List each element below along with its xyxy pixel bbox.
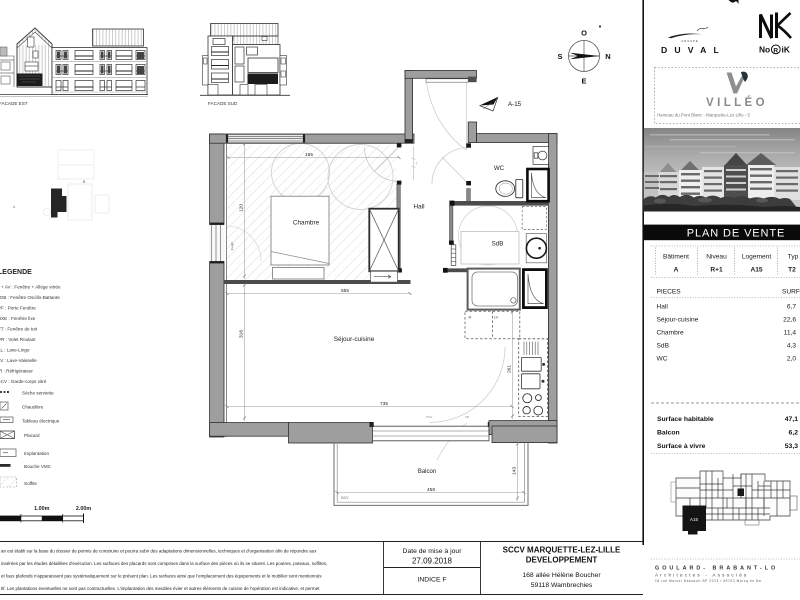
svg-text:T2: T2 bbox=[788, 267, 796, 274]
svg-text:Hall: Hall bbox=[413, 204, 424, 211]
svg-text:22,6: 22,6 bbox=[783, 317, 796, 324]
svg-text:A15: A15 bbox=[750, 267, 762, 274]
svg-text:SdB: SdB bbox=[657, 343, 670, 350]
svg-text:59118 Wambrechies: 59118 Wambrechies bbox=[531, 582, 593, 589]
svg-text:4,3: 4,3 bbox=[787, 343, 796, 350]
svg-text:insérées par les études détail: insérées par les études détaillées d'exé… bbox=[1, 561, 327, 566]
svg-text:VILLÉO: VILLÉO bbox=[706, 96, 768, 109]
svg-text:458: 458 bbox=[427, 487, 435, 493]
svg-text:No: No bbox=[759, 45, 770, 55]
svg-text:A15: A15 bbox=[690, 517, 699, 522]
svg-text:Hameau du Pont Blanc - Marquet: Hameau du Pont Blanc - Marquette-Lez-Lil… bbox=[657, 113, 751, 118]
svg-text:18 rue Marcel Dassault BP 20: 18 rue Marcel Dassault BP 2013 / 59703 M… bbox=[655, 579, 761, 583]
svg-text:GROUPE: GROUPE bbox=[681, 39, 698, 43]
svg-text:6,2: 6,2 bbox=[789, 430, 799, 437]
svg-text:Balcon: Balcon bbox=[418, 469, 436, 475]
svg-text:261: 261 bbox=[507, 365, 513, 373]
svg-text:168 allée Hélène Boucher: 168 allée Hélène Boucher bbox=[522, 572, 601, 579]
svg-text:WC: WC bbox=[494, 165, 505, 172]
svg-text:an est établi sur la base du d: an est établi sur la base du dossier de … bbox=[1, 549, 317, 554]
svg-text:143: 143 bbox=[512, 467, 518, 475]
svg-text:SURF.: SURF. bbox=[782, 289, 800, 296]
svg-text:Séjour-cuisine: Séjour-cuisine bbox=[334, 336, 375, 343]
svg-text:Hall: Hall bbox=[657, 304, 669, 311]
svg-text:Bouche VMC: Bouche VMC bbox=[24, 464, 52, 469]
svg-text:1.00m: 1.00m bbox=[34, 506, 49, 512]
svg-text:FIXE : Fenêtre fixe: FIXE : Fenêtre fixe bbox=[0, 316, 36, 321]
svg-text:O: O bbox=[581, 29, 587, 38]
svg-text:Chambre: Chambre bbox=[293, 220, 320, 227]
svg-text:316: 316 bbox=[239, 330, 245, 338]
svg-text:FACADE SUD: FACADE SUD bbox=[208, 101, 238, 106]
svg-text:A: A bbox=[13, 205, 16, 209]
svg-text:11,4: 11,4 bbox=[784, 330, 797, 337]
svg-text:F + AV : Fenêtre + Allège vitr: F + AV : Fenêtre + Allège vitrée bbox=[0, 285, 61, 290]
svg-text:et faux plafonds n'apparaissen: et faux plafonds n'apparaissent pas syst… bbox=[1, 574, 322, 579]
svg-text:7: 7 bbox=[416, 162, 418, 166]
svg-text:R: R bbox=[469, 316, 472, 320]
svg-text:555: 555 bbox=[341, 288, 349, 294]
svg-text:GCV: GCV bbox=[341, 496, 349, 500]
svg-text:165: 165 bbox=[305, 152, 313, 158]
svg-text:N: N bbox=[605, 52, 610, 61]
svg-text:FOB : Fenêtre Oscillo-Battante: FOB : Fenêtre Oscillo-Battante bbox=[0, 295, 60, 300]
svg-text:R: R bbox=[773, 47, 778, 54]
svg-text:Date de mise à jour: Date de mise à jour bbox=[403, 548, 463, 555]
svg-text:tif. Les plantations éventuell: tif. Les plantations éventuelles ne sont… bbox=[1, 586, 320, 591]
svg-text:2.00m: 2.00m bbox=[76, 506, 91, 512]
svg-text:2,0: 2,0 bbox=[787, 356, 796, 363]
svg-text:PF : Porte Fenêtre: PF : Porte Fenêtre bbox=[0, 306, 36, 311]
svg-text:INDICE F: INDICE F bbox=[417, 577, 446, 584]
svg-text:PVC: PVC bbox=[426, 415, 433, 419]
svg-text:47,1: 47,1 bbox=[785, 416, 798, 423]
svg-text:Bâtiment: Bâtiment bbox=[663, 254, 689, 261]
svg-text:PIECES: PIECES bbox=[657, 289, 682, 296]
svg-text:Sèche serviette: Sèche serviette bbox=[22, 391, 54, 396]
svg-text:FT : Fenêtre de toit: FT : Fenêtre de toit bbox=[0, 327, 38, 332]
svg-text:Chaudière: Chaudière bbox=[22, 405, 44, 410]
svg-text:PLAN DE VENTE: PLAN DE VENTE bbox=[687, 227, 786, 239]
svg-text:VR: VR bbox=[465, 415, 470, 419]
svg-text:R : Réfrigérateur: R : Réfrigérateur bbox=[0, 369, 33, 374]
svg-text:Tableau électrique: Tableau électrique bbox=[22, 419, 60, 424]
svg-text:VR : Volet Roulant: VR : Volet Roulant bbox=[0, 337, 36, 342]
svg-text:LV : Lave-Vaisselle: LV : Lave-Vaisselle bbox=[0, 358, 37, 363]
svg-text:WC: WC bbox=[657, 356, 668, 363]
svg-text:Niveau: Niveau bbox=[706, 254, 727, 261]
svg-text:R+1: R+1 bbox=[710, 267, 723, 274]
svg-text:F+AV: F+AV bbox=[231, 241, 235, 250]
svg-text:120: 120 bbox=[239, 204, 245, 212]
svg-text:GCV : Garde-corps vitré: GCV : Garde-corps vitré bbox=[0, 379, 47, 384]
svg-text:LV: LV bbox=[494, 316, 499, 320]
svg-text:DUVAL: DUVAL bbox=[661, 45, 726, 55]
svg-text:Logement: Logement bbox=[742, 254, 771, 261]
svg-text:FACADE EST: FACADE EST bbox=[0, 101, 28, 106]
svg-text:27.09.2018: 27.09.2018 bbox=[412, 557, 453, 566]
svg-text:iK: iK bbox=[782, 45, 790, 55]
svg-text:Surface à vivre: Surface à vivre bbox=[657, 443, 706, 450]
svg-text:735: 735 bbox=[380, 401, 388, 407]
svg-text:Architectes - Associés: Architectes - Associés bbox=[655, 573, 748, 578]
svg-text:SdB: SdB bbox=[492, 241, 504, 248]
svg-text:Surface habitable: Surface habitable bbox=[657, 416, 714, 423]
svg-text:6,7: 6,7 bbox=[787, 304, 796, 311]
svg-text:E: E bbox=[581, 77, 586, 86]
svg-text:LEGENDE: LEGENDE bbox=[0, 269, 32, 276]
svg-text:GOULARD- BRABANT-LO: GOULARD- BRABANT-LO bbox=[655, 566, 778, 572]
svg-text:53,3: 53,3 bbox=[785, 443, 798, 450]
svg-text:Balcon: Balcon bbox=[657, 430, 680, 437]
svg-text:Typ: Typ bbox=[788, 254, 799, 261]
svg-text:A-15: A-15 bbox=[508, 101, 522, 108]
svg-text:B: B bbox=[83, 180, 86, 184]
svg-text:Chambre: Chambre bbox=[657, 330, 684, 337]
svg-text:LL : Lave-Linge: LL : Lave-Linge bbox=[0, 348, 30, 353]
svg-text:Soffite: Soffite bbox=[24, 481, 37, 486]
svg-text:SCCV MARQUETTE-LEZ-LILLE: SCCV MARQUETTE-LEZ-LILLE bbox=[503, 546, 621, 555]
svg-text:Placard: Placard bbox=[24, 433, 40, 438]
svg-text:Implantation: Implantation bbox=[24, 451, 49, 456]
svg-text:S: S bbox=[557, 52, 562, 61]
svg-text:DEVELOPPEMENT: DEVELOPPEMENT bbox=[526, 556, 598, 565]
svg-text:A: A bbox=[674, 267, 679, 274]
svg-text:Séjour-cuisine: Séjour-cuisine bbox=[657, 317, 699, 324]
